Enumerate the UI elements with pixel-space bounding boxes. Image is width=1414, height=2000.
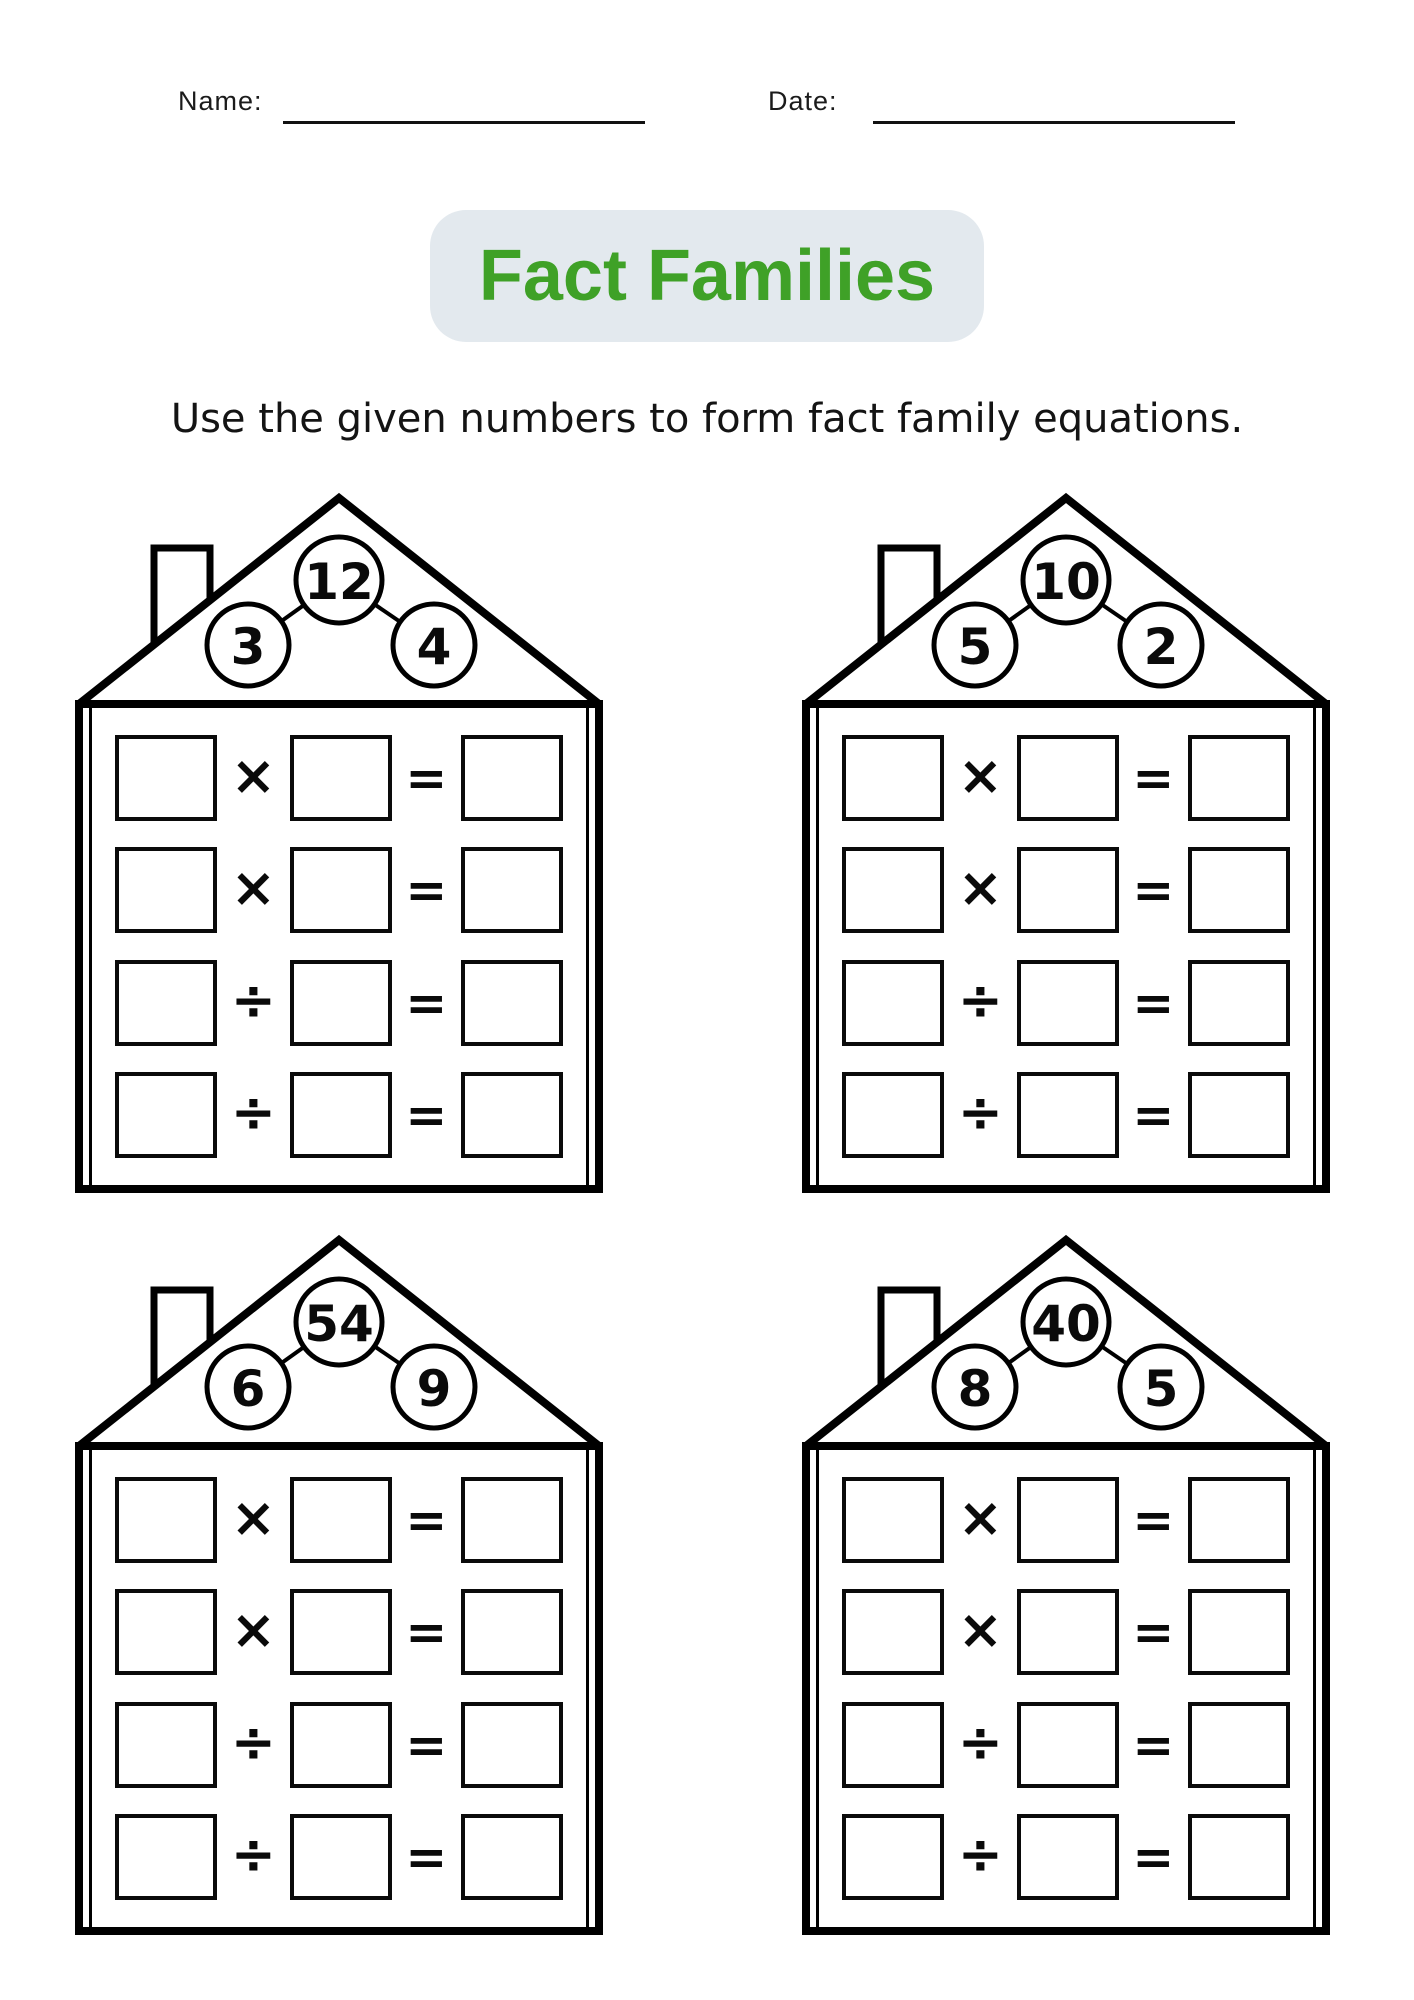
- answer-box[interactable]: [1017, 1589, 1119, 1675]
- answer-box[interactable]: [290, 735, 392, 821]
- answer-box[interactable]: [1017, 1702, 1119, 1788]
- answer-box[interactable]: [290, 1477, 392, 1563]
- answer-box[interactable]: [1188, 1702, 1290, 1788]
- top-number: 10: [1031, 553, 1101, 611]
- answer-box[interactable]: [461, 847, 563, 933]
- instruction-text: Use the given numbers to form fact famil…: [0, 396, 1414, 442]
- divide-operator: ÷: [231, 1716, 276, 1770]
- answer-box[interactable]: [842, 1702, 944, 1788]
- answer-box[interactable]: [290, 1589, 392, 1675]
- divide-operator: ÷: [958, 974, 1003, 1028]
- equation-row: ÷ =: [115, 1814, 563, 1900]
- right-number: 2: [1144, 618, 1179, 676]
- answer-box[interactable]: [1188, 1072, 1290, 1158]
- top-number: 54: [304, 1295, 374, 1353]
- answer-box[interactable]: [461, 1072, 563, 1158]
- equation-row: ÷ =: [115, 960, 563, 1046]
- equation-row: × =: [115, 1477, 563, 1563]
- answer-box[interactable]: [842, 1814, 944, 1900]
- house-roof: 12 3 4: [75, 490, 603, 708]
- answer-box[interactable]: [461, 735, 563, 821]
- answer-box[interactable]: [290, 847, 392, 933]
- answer-box[interactable]: [461, 1589, 563, 1675]
- equals-sign: =: [405, 1720, 447, 1770]
- left-number: 5: [958, 618, 993, 676]
- equals-sign: =: [405, 1495, 447, 1545]
- multiply-operator: ×: [958, 749, 1003, 803]
- answer-box[interactable]: [1188, 960, 1290, 1046]
- equation-row: × =: [115, 847, 563, 933]
- equals-sign: =: [405, 1832, 447, 1882]
- equation-row: × =: [842, 847, 1290, 933]
- answer-box[interactable]: [115, 847, 217, 933]
- answer-box[interactable]: [115, 1702, 217, 1788]
- equals-sign: =: [1132, 1720, 1174, 1770]
- equals-sign: =: [1132, 865, 1174, 915]
- answer-box[interactable]: [461, 1702, 563, 1788]
- divide-operator: ÷: [958, 1828, 1003, 1882]
- equation-row: ÷ =: [842, 960, 1290, 1046]
- equation-row: × =: [842, 735, 1290, 821]
- date-label: Date:: [768, 86, 838, 117]
- answer-box[interactable]: [1017, 1477, 1119, 1563]
- answer-box[interactable]: [1188, 1814, 1290, 1900]
- answer-box[interactable]: [1017, 735, 1119, 821]
- house-body: × = × = ÷ = ÷: [75, 700, 603, 1193]
- multiply-operator: ×: [958, 1491, 1003, 1545]
- equals-sign: =: [405, 1607, 447, 1657]
- multiply-operator: ×: [231, 749, 276, 803]
- fact-family-house-1: 12 3 4 × = × = ÷ =: [75, 490, 603, 1193]
- equals-sign: =: [405, 753, 447, 803]
- left-number: 6: [231, 1360, 266, 1418]
- house-roof: 40 8 5: [802, 1232, 1330, 1450]
- answer-box[interactable]: [842, 1589, 944, 1675]
- divide-operator: ÷: [958, 1086, 1003, 1140]
- equals-sign: =: [1132, 1832, 1174, 1882]
- top-number: 12: [304, 553, 374, 611]
- page-title: Fact Families: [479, 235, 935, 317]
- divide-operator: ÷: [231, 1086, 276, 1140]
- equation-row: × =: [115, 735, 563, 821]
- equation-row: ÷ =: [842, 1702, 1290, 1788]
- equals-sign: =: [405, 1090, 447, 1140]
- left-number: 3: [231, 618, 266, 676]
- equation-row: ÷ =: [842, 1072, 1290, 1158]
- answer-box[interactable]: [115, 735, 217, 821]
- divide-operator: ÷: [231, 974, 276, 1028]
- fact-family-house-4: 40 8 5 × = × = ÷ =: [802, 1232, 1330, 1935]
- equation-row: ÷ =: [842, 1814, 1290, 1900]
- answer-box[interactable]: [115, 1072, 217, 1158]
- date-underline[interactable]: [873, 121, 1235, 124]
- right-number: 5: [1144, 1360, 1179, 1418]
- equation-row: × =: [842, 1589, 1290, 1675]
- multiply-operator: ×: [231, 861, 276, 915]
- answer-box[interactable]: [1188, 1589, 1290, 1675]
- answer-box[interactable]: [842, 1477, 944, 1563]
- answer-box[interactable]: [842, 847, 944, 933]
- answer-box[interactable]: [1017, 960, 1119, 1046]
- equals-sign: =: [1132, 978, 1174, 1028]
- equation-row: × =: [115, 1589, 563, 1675]
- equals-sign: =: [1132, 1495, 1174, 1545]
- answer-box[interactable]: [290, 1814, 392, 1900]
- answer-box[interactable]: [115, 1814, 217, 1900]
- answer-box[interactable]: [290, 960, 392, 1046]
- multiply-operator: ×: [231, 1603, 276, 1657]
- answer-box[interactable]: [1188, 735, 1290, 821]
- house-roof: 10 5 2: [802, 490, 1330, 708]
- answer-box[interactable]: [1188, 847, 1290, 933]
- answer-box[interactable]: [290, 1702, 392, 1788]
- equation-row: ÷ =: [115, 1702, 563, 1788]
- left-number: 8: [958, 1360, 993, 1418]
- name-underline[interactable]: [283, 121, 645, 124]
- right-number: 4: [417, 618, 452, 676]
- fact-family-house-2: 10 5 2 × = × = ÷ =: [802, 490, 1330, 1193]
- answer-box[interactable]: [842, 960, 944, 1046]
- house-roof: 54 6 9: [75, 1232, 603, 1450]
- answer-box[interactable]: [461, 1477, 563, 1563]
- title-pill: Fact Families: [430, 210, 984, 342]
- answer-box[interactable]: [461, 960, 563, 1046]
- answer-box[interactable]: [461, 1814, 563, 1900]
- name-label: Name:: [178, 86, 263, 117]
- equals-sign: =: [405, 978, 447, 1028]
- top-number: 40: [1031, 1295, 1101, 1353]
- answer-box[interactable]: [1017, 1814, 1119, 1900]
- house-body: × = × = ÷ = ÷: [802, 1442, 1330, 1935]
- house-body: × = × = ÷ = ÷: [75, 1442, 603, 1935]
- answer-box[interactable]: [842, 735, 944, 821]
- divide-operator: ÷: [231, 1828, 276, 1882]
- equals-sign: =: [405, 865, 447, 915]
- answer-box[interactable]: [115, 960, 217, 1046]
- equation-row: ÷ =: [115, 1072, 563, 1158]
- divide-operator: ÷: [958, 1716, 1003, 1770]
- fact-family-house-3: 54 6 9 × = × = ÷ =: [75, 1232, 603, 1935]
- equals-sign: =: [1132, 753, 1174, 803]
- multiply-operator: ×: [958, 861, 1003, 915]
- multiply-operator: ×: [958, 1603, 1003, 1657]
- right-number: 9: [417, 1360, 452, 1418]
- answer-box[interactable]: [1017, 1072, 1119, 1158]
- answer-box[interactable]: [1017, 847, 1119, 933]
- answer-box[interactable]: [1188, 1477, 1290, 1563]
- equals-sign: =: [1132, 1090, 1174, 1140]
- answer-box[interactable]: [115, 1477, 217, 1563]
- answer-box[interactable]: [290, 1072, 392, 1158]
- multiply-operator: ×: [231, 1491, 276, 1545]
- answer-box[interactable]: [115, 1589, 217, 1675]
- answer-box[interactable]: [842, 1072, 944, 1158]
- house-body: × = × = ÷ = ÷: [802, 700, 1330, 1193]
- equals-sign: =: [1132, 1607, 1174, 1657]
- equation-row: × =: [842, 1477, 1290, 1563]
